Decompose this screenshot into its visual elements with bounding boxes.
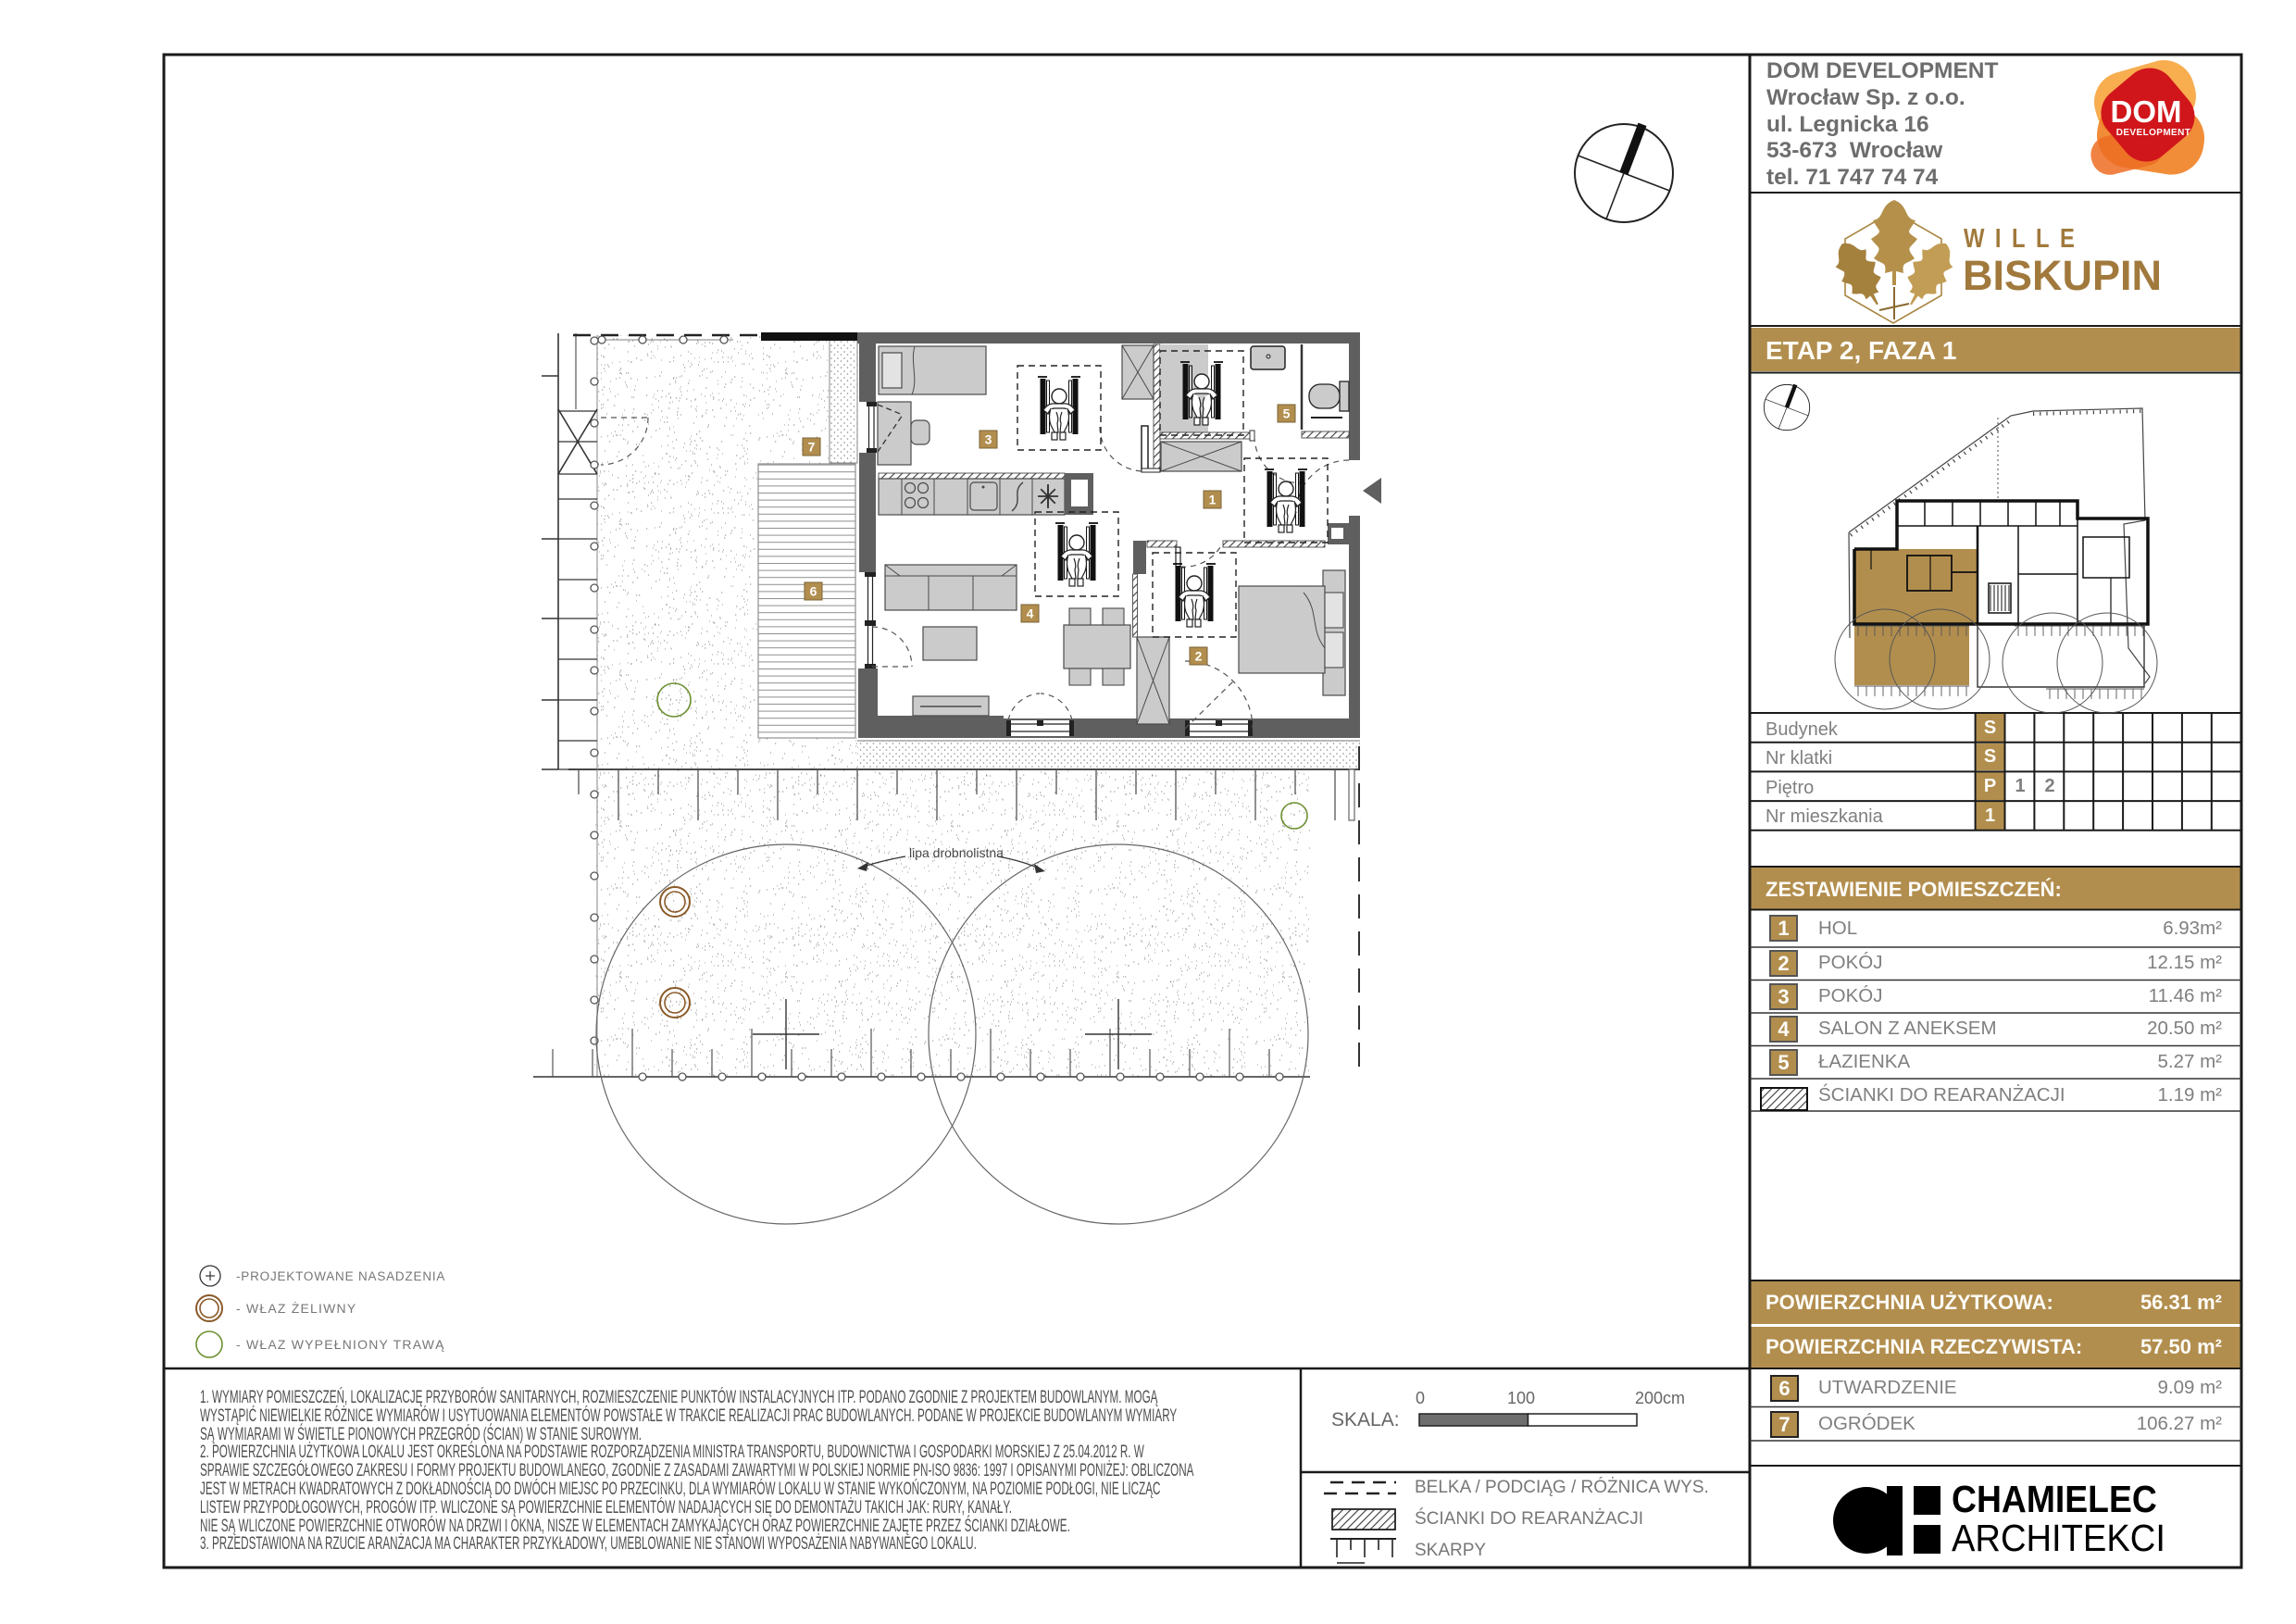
svg-text:DEVELOPMENT: DEVELOPMENT <box>2116 128 2191 138</box>
svg-text:7: 7 <box>808 440 816 455</box>
svg-text:4: 4 <box>1027 606 1034 621</box>
svg-text:DOM: DOM <box>2111 94 2182 129</box>
svg-text:2: 2 <box>1195 649 1203 664</box>
svg-text:5: 5 <box>1283 406 1291 421</box>
svg-text:6: 6 <box>810 584 817 599</box>
svg-text:1: 1 <box>1209 493 1217 507</box>
svg-text:3: 3 <box>985 432 992 447</box>
